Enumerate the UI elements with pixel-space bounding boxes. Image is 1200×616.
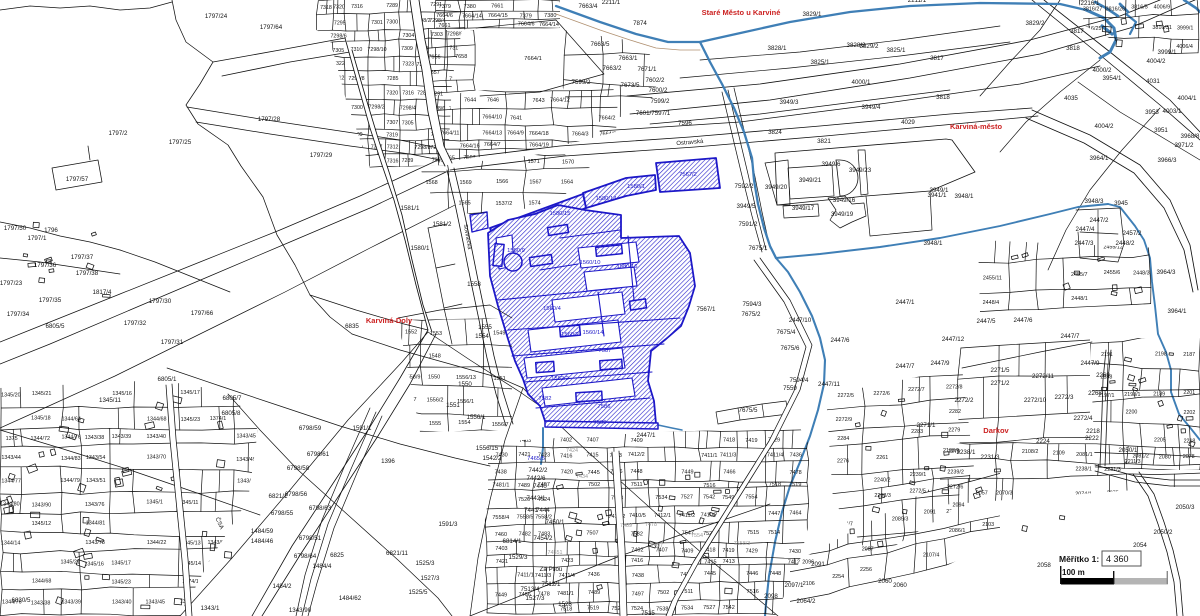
- svg-text:1343/38: 1343/38: [31, 600, 51, 606]
- svg-text:1343/39: 1343/39: [112, 434, 132, 440]
- svg-text:2279: 2279: [948, 428, 960, 434]
- svg-text:3818: 3818: [936, 94, 950, 101]
- svg-text:2089/3: 2089/3: [892, 516, 909, 522]
- svg-text:7497: 7497: [632, 591, 644, 597]
- svg-text:7538: 7538: [656, 606, 668, 612]
- svg-text:7442/2: 7442/2: [529, 467, 548, 474]
- svg-text:2447/3: 2447/3: [1075, 240, 1094, 247]
- svg-text:2447/11: 2447/11: [818, 381, 840, 388]
- svg-text:4006/4: 4006/4: [1176, 44, 1193, 50]
- svg-text:2218: 2218: [1086, 428, 1100, 435]
- svg-text:7516: 7516: [703, 483, 715, 489]
- svg-text:7445: 7445: [704, 571, 716, 577]
- svg-text:1797/38: 1797/38: [76, 270, 99, 277]
- svg-text:7423: 7423: [561, 558, 573, 564]
- svg-text:1550: 1550: [458, 381, 472, 388]
- svg-text:1556/15: 1556/15: [476, 445, 499, 452]
- svg-text:2057: 2057: [976, 491, 988, 497]
- svg-text:7436: 7436: [790, 453, 802, 459]
- svg-text:7664/3: 7664/3: [572, 132, 589, 138]
- svg-text:3949/17: 3949/17: [792, 205, 815, 212]
- svg-text:2239/2: 2239/2: [947, 470, 964, 476]
- svg-text:1591/3: 1591/3: [439, 521, 458, 528]
- svg-text:7489: 7489: [620, 523, 632, 529]
- svg-text:7664/7: 7664/7: [484, 142, 501, 148]
- svg-text:2272/8: 2272/8: [946, 384, 963, 390]
- svg-text:7416: 7416: [560, 454, 572, 460]
- svg-text:2447/9: 2447/9: [1081, 360, 1100, 367]
- svg-text:2094: 2094: [953, 503, 965, 509]
- svg-text:1484/2: 1484/2: [273, 583, 292, 590]
- svg-text:Staré Město u Karviné: Staré Město u Karviné: [702, 8, 781, 17]
- svg-text:2447/9: 2447/9: [931, 360, 950, 367]
- svg-text:7482: 7482: [519, 532, 531, 538]
- svg-text:2447/4: 2447/4: [1076, 226, 1095, 233]
- svg-text:7419: 7419: [722, 548, 734, 554]
- svg-text:3829/2: 3829/2: [860, 43, 879, 50]
- svg-text:1796: 1796: [44, 227, 58, 234]
- svg-text:2272/6: 2272/6: [873, 391, 890, 397]
- svg-text:7411/4: 7411/4: [767, 453, 783, 459]
- svg-text:7438: 7438: [495, 470, 507, 476]
- svg-text:1344/14: 1344/14: [1, 540, 21, 546]
- svg-text:7656: 7656: [428, 55, 440, 61]
- svg-text:3825/1: 3825/1: [887, 47, 906, 54]
- svg-text:3821: 3821: [817, 138, 831, 145]
- svg-text:1797/2: 1797/2: [109, 130, 128, 137]
- svg-text:7596: 7596: [678, 120, 692, 127]
- svg-text:6805/7: 6805/7: [223, 395, 242, 402]
- svg-text:7664/6: 7664/6: [436, 13, 453, 19]
- svg-text:1344/83: 1344/83: [61, 456, 81, 462]
- svg-text:1345/18: 1345/18: [31, 416, 51, 422]
- svg-text:7316: 7316: [402, 90, 414, 96]
- svg-text:7664/12: 7664/12: [550, 98, 570, 104]
- svg-text:4 360: 4 360: [1106, 554, 1129, 564]
- svg-text:2447/10: 2447/10: [789, 317, 812, 324]
- svg-text:7298/4: 7298/4: [400, 105, 416, 111]
- svg-text:6798/61: 6798/61: [307, 451, 330, 458]
- svg-text:7379: 7379: [520, 13, 532, 19]
- svg-text:3816/5: 3816/5: [1131, 4, 1148, 10]
- svg-text:3949/23: 3949/23: [849, 167, 872, 174]
- svg-text:1343/90: 1343/90: [32, 502, 52, 508]
- svg-text:3817: 3817: [930, 55, 944, 62]
- svg-text:2240/2: 2240/2: [874, 477, 891, 483]
- svg-text:2448/2: 2448/2: [1116, 240, 1135, 247]
- svg-text:6798/64: 6798/64: [294, 553, 317, 560]
- svg-text:2268: 2268: [1088, 390, 1102, 397]
- svg-text:1580/15: 1580/15: [550, 211, 571, 217]
- svg-text:3824: 3824: [768, 129, 782, 136]
- svg-text:2282: 2282: [949, 409, 961, 415]
- svg-text:7502: 7502: [588, 482, 600, 488]
- svg-text:1525/5: 1525/5: [409, 589, 428, 596]
- svg-text:2447/2: 2447/2: [1090, 217, 1109, 224]
- svg-text:7300: 7300: [351, 105, 363, 111]
- svg-text:3949/5: 3949/5: [737, 203, 756, 210]
- svg-text:7515: 7515: [641, 610, 655, 616]
- svg-text:Za Pilou: Za Pilou: [540, 566, 563, 573]
- svg-text:1529/3: 1529/3: [509, 554, 528, 561]
- svg-text:7554: 7554: [691, 533, 703, 539]
- svg-text:1550: 1550: [428, 374, 440, 380]
- svg-text:7421: 7421: [518, 452, 530, 458]
- svg-text:2078: 2078: [1183, 454, 1195, 460]
- svg-text:2447/1: 2447/1: [637, 432, 656, 439]
- svg-text:1569: 1569: [459, 180, 471, 186]
- svg-text:7675/6: 7675/6: [781, 345, 800, 352]
- svg-text:6830/5: 6830/5: [12, 597, 31, 604]
- svg-text:7319: 7319: [386, 133, 398, 139]
- svg-text:1797/64: 1797/64: [260, 24, 283, 31]
- svg-text:3964/3: 3964/3: [1157, 269, 1176, 276]
- svg-text:3948/1: 3948/1: [924, 240, 943, 247]
- svg-text:4000/1: 4000/1: [852, 79, 871, 86]
- svg-text:7429: 7429: [746, 549, 758, 555]
- svg-text:7675/4: 7675/4: [777, 329, 796, 336]
- svg-text:3964/1: 3964/1: [1090, 155, 1109, 162]
- svg-text:7305: 7305: [402, 121, 414, 127]
- svg-text:6798/63: 6798/63: [309, 505, 332, 512]
- svg-text:7379: 7379: [439, 4, 451, 10]
- svg-text:7481/1: 7481/1: [493, 483, 510, 489]
- svg-text:1817/4: 1817/4: [93, 289, 112, 296]
- svg-text:7411/1: 7411/1: [701, 453, 717, 459]
- svg-text:3828/1: 3828/1: [768, 45, 787, 52]
- svg-text:7534: 7534: [681, 605, 693, 611]
- svg-text:1343/1: 1343/1: [201, 605, 220, 612]
- svg-text:7644: 7644: [464, 98, 476, 104]
- svg-text:2108/2: 2108/2: [1022, 449, 1039, 455]
- svg-text:1525/3: 1525/3: [416, 560, 435, 567]
- svg-text:2448/1: 2448/1: [1071, 296, 1088, 302]
- svg-text:3816/26: 3816/26: [1106, 7, 1126, 13]
- svg-text:7664/11: 7664/11: [440, 130, 459, 136]
- svg-text:7316: 7316: [351, 4, 363, 10]
- svg-text:2187: 2187: [1183, 352, 1195, 358]
- svg-text:1484/46: 1484/46: [251, 538, 274, 545]
- svg-text:7478: 7478: [789, 470, 801, 476]
- svg-text:1565: 1565: [458, 201, 470, 207]
- svg-text:7312: 7312: [387, 144, 399, 150]
- svg-text:6821/11: 6821/11: [386, 550, 408, 557]
- svg-text:2091: 2091: [924, 510, 936, 516]
- svg-text:1558: 1558: [467, 281, 481, 288]
- svg-text:7320: 7320: [386, 90, 398, 96]
- svg-text:1345/11: 1345/11: [99, 397, 121, 404]
- svg-text:1345/16: 1345/16: [112, 391, 132, 397]
- svg-text:7318: 7318: [320, 5, 332, 11]
- svg-text:3999/1: 3999/1: [1158, 49, 1177, 56]
- svg-text:7412/2: 7412/2: [628, 452, 645, 458]
- svg-text:2211/1: 2211/1: [908, 0, 927, 4]
- svg-text:2256: 2256: [860, 567, 872, 573]
- svg-text:7591/2: 7591/2: [739, 221, 758, 228]
- svg-text:7675/5: 7675/5: [739, 407, 758, 414]
- svg-text:4006/9: 4006/9: [1154, 5, 1171, 11]
- svg-text:7661: 7661: [491, 4, 503, 10]
- svg-text:74551: 74551: [548, 550, 563, 556]
- svg-text:2050/1: 2050/1: [1119, 447, 1138, 454]
- svg-text:2191: 2191: [1101, 352, 1113, 358]
- svg-text:2284: 2284: [837, 436, 849, 442]
- svg-text:3941/1: 3941/1: [928, 192, 947, 199]
- svg-text:7380: 7380: [544, 13, 556, 19]
- svg-text:6805/8: 6805/8: [222, 410, 241, 417]
- svg-text:7448: 7448: [630, 469, 642, 475]
- svg-text:3829/2: 3829/2: [1026, 20, 1045, 27]
- svg-text:1549: 1549: [493, 331, 505, 337]
- svg-text:2198: 2198: [1155, 351, 1167, 357]
- svg-text:7507: 7507: [586, 531, 598, 537]
- svg-text:1564: 1564: [561, 179, 573, 185]
- svg-text:7402: 7402: [631, 547, 643, 553]
- svg-text:7421: 7421: [496, 559, 508, 565]
- svg-text:1571: 1571: [528, 159, 540, 165]
- svg-text:7460: 7460: [495, 532, 507, 538]
- svg-text:7515: 7515: [747, 530, 759, 536]
- svg-text:7658: 7658: [455, 54, 467, 60]
- svg-text:Darkov: Darkov: [983, 426, 1009, 435]
- svg-text:2205: 2205: [1154, 438, 1166, 444]
- svg-text:1567: 1567: [529, 180, 541, 186]
- svg-text:7289: 7289: [402, 158, 414, 164]
- svg-text:7671/1: 7671/1: [638, 66, 657, 73]
- svg-text:7323: 7323: [402, 62, 414, 68]
- svg-text:Karviná-město: Karviná-město: [950, 122, 1003, 131]
- svg-text:7416: 7416: [631, 558, 643, 564]
- svg-text:1537/2: 1537/2: [495, 201, 512, 207]
- svg-text:7413: 7413: [723, 559, 735, 565]
- svg-text:7444: 7444: [536, 507, 550, 514]
- svg-text:2272/6: 2272/6: [947, 484, 964, 490]
- svg-text:4035: 4035: [1064, 95, 1078, 102]
- svg-text:1560/14: 1560/14: [583, 330, 605, 336]
- svg-text:7450/1: 7450/1: [546, 519, 565, 526]
- svg-text:6814/1: 6814/1: [503, 538, 522, 545]
- svg-text:7663/1: 7663/1: [619, 55, 638, 62]
- svg-text:2271/1: 2271/1: [917, 422, 936, 429]
- svg-text:1343/73: 1343/73: [85, 540, 105, 546]
- svg-text:1580/14: 1580/14: [596, 196, 618, 202]
- svg-text:1560/10: 1560/10: [580, 260, 601, 266]
- svg-text:2060: 2060: [893, 582, 907, 589]
- svg-text:1344/22: 1344/22: [147, 540, 167, 546]
- svg-text:6798/51: 6798/51: [299, 535, 322, 542]
- svg-text:Karviná-Doly: Karviná-Doly: [366, 316, 413, 325]
- svg-text:7436: 7436: [588, 572, 600, 578]
- svg-text:2201: 2201: [1183, 390, 1195, 396]
- svg-text:7464: 7464: [789, 511, 801, 517]
- svg-text:3948/1: 3948/1: [955, 193, 974, 200]
- svg-text:7489: 7489: [518, 483, 530, 489]
- svg-text:7664/1: 7664/1: [524, 56, 542, 62]
- svg-text:7301: 7301: [371, 20, 383, 26]
- svg-text:2283: 2283: [911, 429, 923, 435]
- svg-text:1484/62: 1484/62: [339, 595, 362, 602]
- svg-text:3971/2: 3971/2: [1175, 142, 1194, 149]
- svg-text:2211/1: 2211/1: [602, 0, 621, 6]
- svg-text:1560/2: 1560/2: [561, 332, 579, 338]
- svg-text:7542: 7542: [723, 605, 735, 611]
- svg-text:3949/21: 3949/21: [799, 177, 822, 184]
- svg-text:7600/2: 7600/2: [649, 87, 668, 94]
- svg-text:7558/4: 7558/4: [492, 515, 509, 521]
- svg-text:7664/9: 7664/9: [507, 131, 524, 137]
- svg-text:7534: 7534: [655, 495, 667, 501]
- svg-text:3951: 3951: [1154, 127, 1168, 134]
- svg-text:4003/1: 4003/1: [1163, 108, 1182, 115]
- svg-text:2276: 2276: [837, 459, 849, 465]
- svg-text:2447/6: 2447/6: [831, 337, 850, 344]
- svg-text:2447/7: 2447/7: [1061, 333, 1080, 340]
- svg-text:1797/29: 1797/29: [310, 152, 333, 159]
- svg-text:7411/1: 7411/1: [517, 573, 533, 579]
- svg-text:7489: 7489: [588, 590, 600, 596]
- svg-text:7454/2: 7454/2: [534, 535, 553, 542]
- svg-text:7446: 7446: [746, 571, 758, 577]
- svg-text:1566: 1566: [496, 179, 508, 185]
- svg-text:1345/23: 1345/23: [111, 579, 131, 585]
- svg-text:7420: 7420: [561, 469, 573, 475]
- svg-text:7415: 7415: [586, 452, 598, 458]
- svg-text:2447/6: 2447/6: [1014, 317, 1033, 324]
- svg-text:2448/4: 2448/4: [983, 300, 1000, 306]
- svg-text:1580/1: 1580/1: [411, 245, 430, 252]
- svg-text:3949/3: 3949/3: [780, 99, 799, 106]
- svg-text:7305: 7305: [332, 48, 344, 54]
- svg-text:7424: 7424: [566, 448, 578, 454]
- svg-text:7599/2: 7599/2: [651, 98, 670, 105]
- svg-text:7298/6: 7298/6: [330, 34, 346, 40]
- svg-text:2271/5: 2271/5: [991, 367, 1010, 374]
- svg-text:1797/28: 1797/28: [258, 116, 281, 123]
- svg-text:7411/3: 7411/3: [535, 573, 551, 579]
- svg-text:1797/66: 1797/66: [191, 310, 214, 317]
- svg-text:1580/9: 1580/9: [507, 248, 525, 254]
- svg-text:1556/7: 1556/7: [492, 422, 509, 428]
- svg-text:7675/1: 7675/1: [749, 245, 768, 252]
- svg-text:1345/16: 1345/16: [84, 562, 104, 568]
- svg-text:2107/4: 2107/4: [923, 552, 940, 558]
- svg-text:7664/14: 7664/14: [539, 22, 559, 28]
- svg-text:1581/2: 1581/2: [433, 221, 452, 228]
- svg-text:7641: 7641: [510, 115, 522, 121]
- svg-text:1344/79: 1344/79: [60, 478, 80, 484]
- svg-text:7643: 7643: [532, 98, 544, 104]
- svg-text:7514: 7514: [768, 530, 780, 536]
- svg-text:7599: 7599: [594, 420, 607, 426]
- svg-text:1343/45: 1343/45: [146, 600, 166, 606]
- svg-text:1551: 1551: [493, 376, 505, 382]
- svg-text:3953: 3953: [1145, 109, 1159, 116]
- svg-text:2064/2: 2064/2: [797, 598, 816, 605]
- svg-text:7415: 7415: [704, 559, 716, 565]
- svg-text:1345/12: 1345/12: [32, 521, 52, 527]
- svg-text:2086/1: 2086/1: [949, 528, 966, 534]
- svg-text:2447/12: 2447/12: [942, 336, 965, 343]
- svg-text:7663/5: 7663/5: [591, 41, 610, 48]
- svg-text:2058: 2058: [1037, 562, 1051, 569]
- svg-text:7449: 7449: [495, 592, 507, 598]
- svg-text:1556/1: 1556/1: [467, 414, 486, 421]
- svg-text:3818: 3818: [1066, 45, 1080, 52]
- svg-text:1797/34: 1797/34: [7, 311, 30, 318]
- svg-text:1570: 1570: [562, 160, 574, 166]
- svg-text:1344/68: 1344/68: [32, 579, 52, 585]
- svg-text:7664/13: 7664/13: [482, 131, 502, 137]
- svg-text:2070/3: 2070/3: [996, 491, 1013, 497]
- svg-text:2198/1: 2198/1: [1124, 392, 1140, 398]
- svg-text:7664/14: 7664/14: [462, 14, 482, 20]
- svg-text:1527/3: 1527/3: [421, 575, 440, 582]
- svg-text:7497: 7497: [651, 543, 663, 549]
- svg-text:7440: 7440: [533, 483, 547, 490]
- svg-text:2091: 2091: [811, 561, 825, 568]
- svg-text:1568: 1568: [425, 180, 437, 186]
- svg-text:2050/3: 2050/3: [1176, 504, 1195, 511]
- svg-text:2293/3: 2293/3: [874, 493, 891, 499]
- svg-text:1555: 1555: [429, 421, 441, 427]
- svg-text:7567/1: 7567/1: [697, 306, 716, 313]
- svg-text:1797/36: 1797/36: [34, 262, 57, 269]
- svg-text:7418: 7418: [723, 438, 735, 444]
- svg-text:2097/1: 2097/1: [785, 582, 804, 589]
- svg-text:3964/1: 3964/1: [1168, 308, 1187, 315]
- svg-text:1797/31: 1797/31: [161, 339, 184, 346]
- svg-text:1797/50: 1797/50: [4, 225, 27, 232]
- svg-text:7445: 7445: [588, 470, 600, 476]
- svg-text:2109: 2109: [1053, 451, 1065, 457]
- svg-text:1556/2: 1556/2: [427, 398, 444, 404]
- svg-text:6798/56: 6798/56: [285, 491, 308, 498]
- svg-text:7303: 7303: [431, 32, 443, 38]
- svg-text:7594/3: 7594/3: [743, 301, 762, 308]
- svg-text:7438: 7438: [632, 573, 644, 579]
- svg-text:6798/55: 6798/55: [271, 510, 294, 517]
- svg-text:7407: 7407: [587, 438, 599, 444]
- svg-text:7518: 7518: [769, 482, 781, 488]
- svg-text:7412/1: 7412/1: [654, 513, 671, 519]
- svg-text:7442/6: 7442/6: [527, 475, 546, 482]
- svg-text:7298/8: 7298/8: [414, 145, 430, 151]
- svg-text:7466: 7466: [723, 470, 735, 476]
- svg-text:2103: 2103: [982, 522, 994, 528]
- svg-text:3966/3: 3966/3: [1158, 157, 1177, 164]
- svg-text:1528: 1528: [558, 601, 572, 608]
- svg-text:2200: 2200: [1126, 409, 1138, 415]
- svg-text:2455/6: 2455/6: [1104, 270, 1121, 276]
- svg-text:1343/45: 1343/45: [236, 434, 256, 440]
- svg-text:2224: 2224: [1036, 438, 1050, 445]
- svg-text:3945: 3945: [1114, 200, 1128, 207]
- svg-text:2269: 2269: [1096, 372, 1110, 379]
- svg-text:7481/1: 7481/1: [557, 591, 574, 597]
- svg-text:4004/2: 4004/2: [1095, 123, 1114, 130]
- svg-text:3816/27: 3816/27: [1083, 7, 1103, 13]
- svg-text:2189: 2189: [1153, 391, 1165, 397]
- svg-text:1396: 1396: [381, 458, 395, 465]
- svg-text:7558/5: 7558/5: [517, 514, 534, 520]
- svg-text:1484/4: 1484/4: [313, 563, 332, 570]
- svg-text:2216/1: 2216/1: [1081, 0, 1100, 7]
- svg-text:1551: 1551: [446, 402, 460, 409]
- svg-text:7567/2: 7567/2: [679, 172, 697, 178]
- svg-text:7513/4: 7513/4: [521, 586, 540, 593]
- svg-text:1343/90: 1343/90: [289, 607, 312, 614]
- svg-text:7409: 7409: [681, 548, 693, 554]
